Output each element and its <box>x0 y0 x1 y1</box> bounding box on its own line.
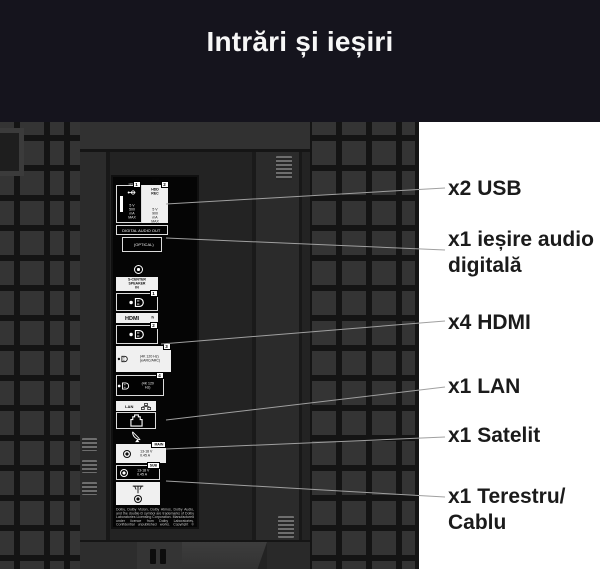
trim-segment <box>80 542 137 569</box>
back-panel-texture-left <box>0 122 80 569</box>
optical-port: (OPTICAL) <box>122 237 162 252</box>
optical-label: (OPTICAL) <box>134 242 154 247</box>
hdmi-specs: (4K 120 Hz) (eARC/ARC) <box>140 355 160 363</box>
port-number-badge: 4 <box>156 372 164 379</box>
bay-top-lip <box>80 122 310 152</box>
terrestrial-port <box>116 482 160 505</box>
satellite-main-badge: MAIN <box>151 441 166 448</box>
trim-segment <box>182 542 267 569</box>
cable-clip <box>82 460 97 473</box>
spec-page: Intrări și ieșiri <box>0 0 600 569</box>
callout-hdmi: x4 HDMI <box>448 310 531 336</box>
rj45-icon <box>129 414 144 427</box>
s-center-speaker-label: S-CENTER SPEAKER IN <box>116 277 158 291</box>
satellite-sub-badge: SUB <box>147 462 160 469</box>
hdmi-plug-icon <box>117 381 131 391</box>
header: Intrări și ieșiri <box>0 0 600 122</box>
satellite-spec: 13-18 V 0.45 A <box>137 469 149 477</box>
round-connector-icon <box>120 469 128 477</box>
hdmi-port-4: (4K 120 Hz) 4 <box>116 375 164 396</box>
connector-bay: USB 5 V 500 mA MAX USB HDD REC 5 V 900 m… <box>80 122 310 569</box>
bay-right-ridge <box>252 152 302 540</box>
connector-panel: USB 5 V 500 mA MAX USB HDD REC 5 V 900 m… <box>113 177 197 527</box>
hdmi-plug-icon <box>117 354 129 364</box>
antenna-icon <box>131 485 145 494</box>
cable-clip <box>82 482 97 495</box>
usb-label: USB <box>151 178 158 182</box>
port-number-badge: 1 <box>133 181 141 188</box>
round-connector-icon <box>123 450 131 458</box>
usb-hdd-rec-label: HDD REC <box>149 188 161 196</box>
cable-clip <box>276 156 292 180</box>
satellite-sub-port: 13-18 V 0.45 A SUB <box>116 465 160 480</box>
dolby-legal-text: Dolby, Dolby Vision, Dolby Atmos, Dolby … <box>116 508 194 526</box>
port-number-badge: 1 <box>150 290 158 297</box>
tv-back-image: USB 5 V 500 mA MAX USB HDD REC 5 V 900 m… <box>0 122 419 569</box>
bottom-trim <box>80 540 310 569</box>
hdmi-specs: (4K 120 Hz) <box>139 382 155 390</box>
satellite-spec: 13-18 V 0.45 A <box>140 450 152 458</box>
hdmi-plug-icon <box>128 329 146 340</box>
port-number-badge: 2 <box>161 181 169 188</box>
usb-spec: 5 V 500 mA MAX <box>128 204 137 220</box>
port-number-badge: 3 <box>163 343 171 350</box>
lan-label: LAN <box>116 401 156 411</box>
stand-slot <box>160 549 166 564</box>
lan-network-icon <box>141 403 151 410</box>
hdmi-port-3: (4K 120 Hz) (eARC/ARC) 3 <box>116 346 171 372</box>
stand-slot-area <box>137 542 182 569</box>
callout-satellite: x1 Satelit <box>448 423 540 449</box>
mount-bracket <box>0 128 24 176</box>
page-title: Intrări și ieșiri <box>206 26 393 58</box>
callout-usb: x2 USB <box>448 176 522 202</box>
round-connector-icon <box>134 495 142 503</box>
usb-block: USB 5 V 500 mA MAX USB HDD REC 5 V 900 m… <box>116 185 168 223</box>
satellite-dish-icon <box>130 431 142 443</box>
satellite-main-port: 13-18 V 0.45 A MAIN <box>116 444 166 463</box>
callout-lan: x1 LAN <box>448 374 520 400</box>
cable-clip <box>278 516 294 538</box>
callout-audio: x1 ieșire audio digitală <box>448 227 594 279</box>
port-number-badge: 2 <box>150 322 158 329</box>
usb-icon <box>127 189 138 196</box>
usb-port-1: USB 5 V 500 mA MAX <box>116 185 142 223</box>
usb-spec: 5 V 900 mA MAX <box>149 208 161 224</box>
s-center-connector-icon <box>134 265 143 274</box>
hdmi-in-suffix: IN <box>150 316 154 320</box>
hdmi-logo: HDMI <box>125 315 139 321</box>
digital-audio-out-label: DIGITAL AUDIO OUT <box>116 225 168 235</box>
hdmi-port-1: 1 <box>116 293 158 311</box>
lan-port <box>116 412 156 429</box>
hdmi-plug-icon <box>128 297 146 308</box>
cable-clip <box>82 438 97 451</box>
trim-segment <box>267 542 310 569</box>
hdmi-port-2: 2 <box>116 325 158 344</box>
stand-slot <box>150 549 156 564</box>
usb-port-2: USB HDD REC 5 V 900 mA MAX <box>142 185 168 223</box>
back-panel-texture-right <box>310 122 419 569</box>
callout-terrestrial: x1 Terestru/ Cablu <box>448 484 566 536</box>
